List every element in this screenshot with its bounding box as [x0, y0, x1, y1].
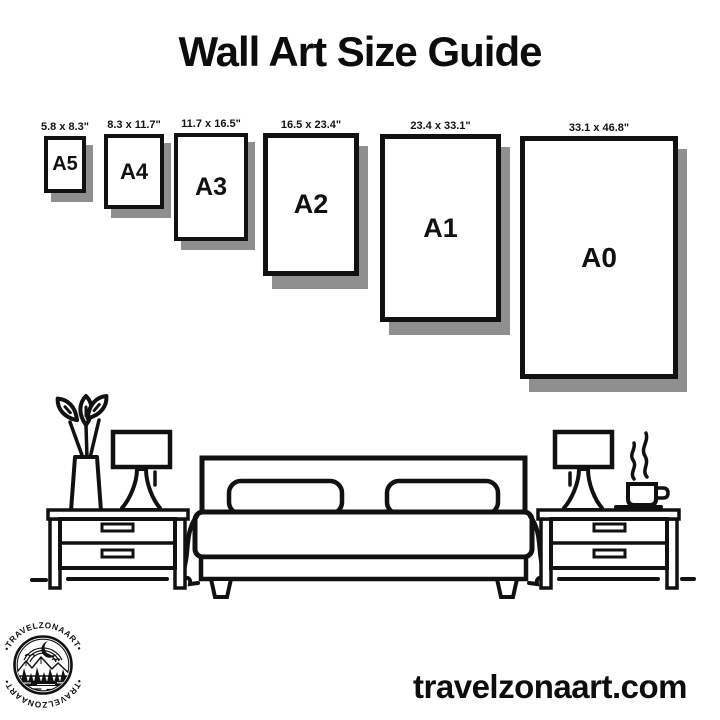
- drawer-handle: [594, 550, 625, 557]
- size-frame-a3: 11.7 x 16.5" A3: [174, 133, 248, 241]
- flower-stem: [70, 422, 83, 458]
- lamp-shade: [113, 432, 170, 467]
- leaf: [53, 395, 81, 424]
- size-frame-a1: 23.4 x 33.1" A1: [380, 134, 501, 322]
- drawer-handle: [102, 524, 133, 531]
- website-url: travelzonaart.com: [390, 668, 710, 706]
- size-frame-a4: 8.3 x 11.7" A4: [104, 134, 164, 209]
- nightstand-icon: [538, 510, 679, 588]
- lamp-shade: [555, 432, 612, 467]
- page-title: Wall Art Size Guide: [0, 28, 720, 76]
- size-letter-a4: A4: [120, 159, 148, 185]
- table-lamp-icon: [555, 432, 612, 510]
- size-dimensions-a1: 23.4 x 33.1": [410, 120, 470, 132]
- size-dimensions-a4: 8.3 x 11.7": [107, 119, 161, 131]
- size-frame-a2: 16.5 x 23.4" A2: [263, 133, 359, 276]
- size-frame-a5: 5.8 x 8.3" A5: [44, 136, 86, 193]
- steam-icon: [643, 433, 647, 477]
- cup-body: [628, 484, 656, 505]
- pillow-icon: [387, 481, 498, 514]
- size-letter-a0: A0: [581, 242, 617, 274]
- size-dimensions-a5: 5.8 x 8.3": [41, 121, 89, 133]
- bed-leg: [497, 579, 517, 597]
- drawer-handle: [102, 550, 133, 557]
- vase: [71, 457, 101, 511]
- bed-base: [201, 557, 526, 579]
- nightstand-icon: [48, 510, 188, 588]
- brand-logo: •TRAVELZONAART• •TRAVELZONAART•: [0, 616, 93, 720]
- size-letter-a5: A5: [52, 153, 78, 176]
- double-bed-icon: [183, 458, 544, 597]
- size-letter-a1: A1: [423, 213, 458, 244]
- size-frame-a0: 33.1 x 46.8" A0: [520, 136, 678, 379]
- size-letter-a2: A2: [294, 189, 329, 220]
- coffee-cup-icon: [616, 433, 668, 507]
- bed-leg: [211, 579, 231, 597]
- size-dimensions-a2: 16.5 x 23.4": [281, 119, 341, 131]
- bedroom-illustration: [20, 380, 710, 610]
- size-dimensions-a0: 33.1 x 46.8": [569, 122, 629, 134]
- drawer-handle: [594, 524, 625, 531]
- bed-mattress: [195, 512, 532, 557]
- flower-vase-icon: [53, 392, 110, 511]
- steam-icon: [632, 443, 635, 479]
- flower-stem: [86, 425, 87, 458]
- pillow-icon: [229, 481, 342, 514]
- flower-stem: [90, 420, 99, 458]
- size-letter-a3: A3: [195, 173, 227, 202]
- size-dimensions-a3: 11.7 x 16.5": [181, 118, 241, 130]
- table-lamp-icon: [113, 432, 170, 510]
